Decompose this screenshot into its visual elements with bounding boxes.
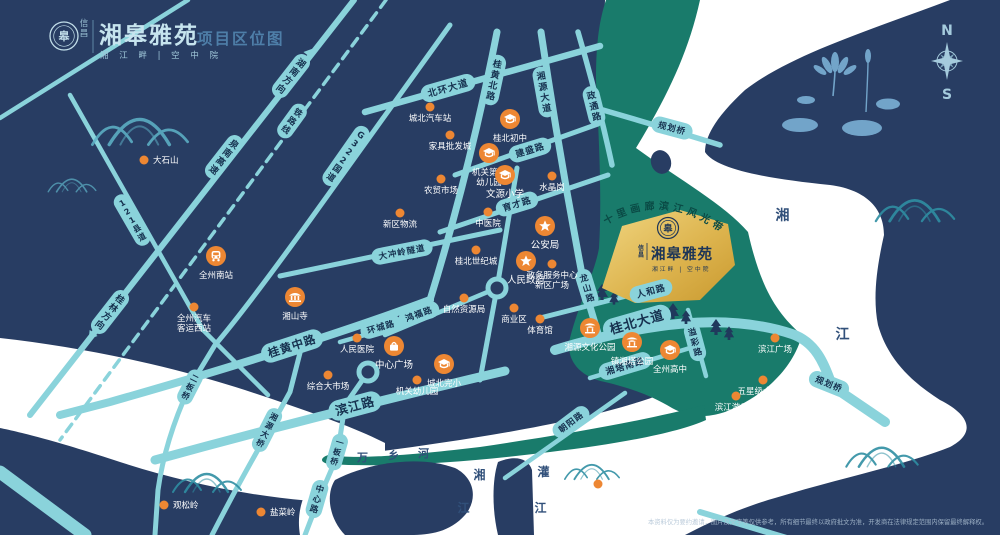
svg-text:家具批发城: 家具批发城 — [429, 141, 472, 152]
location-map-poster: N S 皋 信昌 湘皋雅苑 湘江畔 | 空中院 十里画廊滨江风光带 万乡河湘江灌… — [0, 0, 1000, 535]
svg-text:人民政府: 人民政府 — [507, 274, 546, 286]
svg-text:自然资源局: 自然资源局 — [443, 304, 486, 315]
page-label: 项目区位图 — [197, 29, 285, 48]
poi-dot-icon — [548, 172, 557, 181]
svg-text:镇湘塔公园: 镇湘塔公园 — [611, 356, 654, 367]
poi-dot-icon — [510, 304, 519, 313]
poi-park-icon — [622, 332, 642, 352]
river-label-江: 江 — [534, 500, 547, 515]
svg-text:大石山: 大石山 — [153, 155, 179, 166]
river-label-万: 万 — [356, 451, 369, 464]
river-label-湘: 湘 — [776, 207, 791, 224]
svg-text:滨江游乐园: 滨江游乐园 — [715, 402, 758, 413]
poi-dot-icon — [472, 246, 481, 255]
svg-text:矿山公园: 矿山公园 — [581, 500, 615, 511]
svg-text:雷公岭国家: 雷公岭国家 — [577, 490, 620, 501]
project-seal-logo: 皋 — [658, 218, 679, 239]
river-label-乡: 乡 — [388, 449, 400, 462]
poi-dot-icon — [484, 208, 493, 217]
poi-dot-icon — [732, 392, 741, 401]
river-label-江: 江 — [836, 326, 851, 343]
svg-text:全州汽车: 全州汽车 — [177, 313, 211, 324]
svg-text:湘山寺: 湘山寺 — [282, 311, 308, 322]
project-subtitle: 湘江畔 | 空中院 — [652, 265, 710, 273]
poi-dot-icon — [759, 376, 768, 385]
svg-text:新区物流: 新区物流 — [383, 219, 418, 230]
brand-name-vertical: 信昌 — [80, 18, 89, 39]
svg-text:盐菜岭: 盐菜岭 — [270, 507, 296, 518]
river-label-江: 江 — [457, 500, 470, 515]
river-label-灌: 灌 — [536, 464, 550, 479]
river-label-河: 河 — [418, 446, 430, 460]
poi-park-icon — [580, 318, 600, 338]
svg-text:文源小学: 文源小学 — [486, 188, 524, 200]
svg-text:中心广场: 中心广场 — [375, 359, 413, 371]
svg-text:体育馆: 体育馆 — [527, 325, 553, 336]
svg-text:全州南站: 全州南站 — [199, 270, 234, 281]
svg-text:水晶岗: 水晶岗 — [539, 182, 565, 193]
svg-text:中医院: 中医院 — [475, 218, 501, 229]
poi-dot-icon — [536, 315, 545, 324]
poi-dot-icon — [437, 175, 446, 184]
svg-text:客运西站: 客运西站 — [177, 323, 212, 334]
svg-text:人民医院: 人民医院 — [340, 344, 375, 355]
poi-dot-icon — [353, 334, 362, 343]
river-label-湘: 湘 — [473, 467, 486, 482]
project-brand: 信昌 — [638, 244, 644, 259]
disclaimer: 本资料仅为要约邀请，图片及文字等仅供参考，所有细节最终以政府批文为准，开发商在法… — [648, 517, 988, 526]
poi-dot-icon — [190, 303, 199, 312]
compass-north-label: N — [941, 23, 953, 39]
page-title: 湘皋雅苑 — [99, 22, 199, 49]
poi-dot-icon — [396, 209, 405, 218]
svg-text:五星级大酒店: 五星级大酒店 — [737, 386, 789, 397]
poi-dot-icon — [413, 376, 422, 385]
svg-text:桂北世纪城: 桂北世纪城 — [455, 256, 498, 267]
svg-text:滨江广场: 滨江广场 — [758, 344, 792, 355]
compass-south-label: S — [942, 87, 952, 103]
project-name: 湘皋雅苑 — [651, 245, 713, 263]
svg-text:农贸市场: 农贸市场 — [424, 185, 458, 196]
svg-text:城北完小: 城北完小 — [427, 378, 462, 389]
poi-dot-icon — [257, 508, 266, 517]
svg-text:湘源文化公园: 湘源文化公园 — [564, 342, 615, 353]
svg-text:桂北初中: 桂北初中 — [493, 133, 527, 144]
poi-dot-icon — [324, 371, 333, 380]
poi-dot-icon — [771, 334, 780, 343]
svg-text:城北汽车站: 城北汽车站 — [409, 113, 452, 124]
poi-dot-icon — [594, 480, 603, 489]
svg-text:皋: 皋 — [59, 29, 71, 43]
svg-text:观松岭: 观松岭 — [173, 500, 199, 511]
svg-text:公安局: 公安局 — [531, 239, 560, 251]
poi-dot-icon — [446, 131, 455, 140]
poi-dot-icon — [548, 260, 557, 269]
svg-text:全州高中: 全州高中 — [653, 364, 687, 375]
poi-dot-icon — [426, 103, 435, 112]
svg-text:综合大市场: 综合大市场 — [307, 381, 350, 392]
poi-dot-icon — [160, 501, 169, 510]
svg-text:商业区: 商业区 — [501, 314, 527, 325]
poi-dot-icon — [460, 294, 469, 303]
header-subtitle: 湘 江 畔 | 空 中 院 — [100, 50, 222, 61]
svg-text:皋: 皋 — [663, 223, 673, 235]
poi-dot-icon — [140, 156, 149, 165]
